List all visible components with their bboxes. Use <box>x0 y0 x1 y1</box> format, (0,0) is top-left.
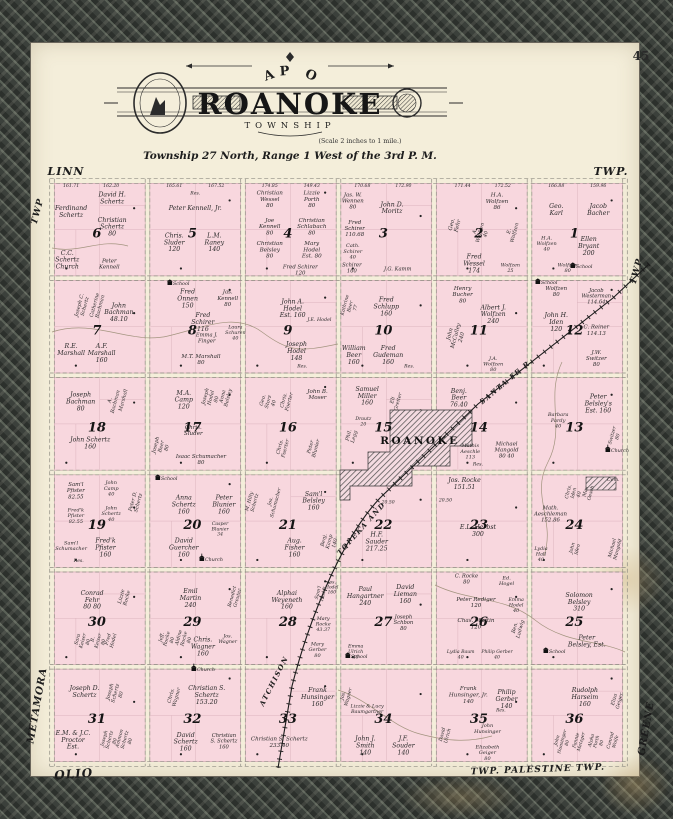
adjacent-township-label: LINN <box>47 165 85 178</box>
section-number: 34 <box>374 712 392 727</box>
parcel-label: Sam'lPfister82.55 <box>66 482 85 500</box>
parcel-label: 167.52 <box>208 183 224 189</box>
section-number: 21 <box>278 518 297 533</box>
section-number: 1 <box>570 226 579 241</box>
township-map: 161.71162.20FerdinandSchertzDavid H.Sche… <box>0 0 673 819</box>
parcel-label: MaryRocke43.37 <box>315 616 331 633</box>
parcel-label: 172.52 <box>495 183 511 189</box>
section-number: 5 <box>188 226 197 241</box>
feature-label: Church <box>205 557 223 563</box>
section-number: 6 <box>92 226 101 241</box>
parcel-label: Res. <box>189 191 201 197</box>
adjacent-township-label: TWP <box>30 197 47 225</box>
section-number: 26 <box>469 615 488 630</box>
section-number: 4 <box>283 226 292 241</box>
map-of-text: MAP OF <box>0 0 324 87</box>
section-number: 35 <box>470 712 488 727</box>
section-number: 23 <box>469 518 488 533</box>
section-number: 7 <box>92 324 101 339</box>
section-number: 14 <box>470 421 488 436</box>
section-number: 16 <box>279 421 297 436</box>
adjacent-township-label: METAMORA <box>25 667 49 746</box>
parcel-label: John A.HodelEst. 160 <box>279 298 306 319</box>
feature-label: School <box>541 280 558 286</box>
section-number: 28 <box>278 615 297 630</box>
parcel-label: 170.68 <box>354 183 370 189</box>
section-number: 31 <box>88 712 106 727</box>
section-number: 12 <box>565 324 583 339</box>
township-range-line: Township 27 North, Range 1 West of the 3… <box>143 150 437 162</box>
section-number: 20 <box>182 518 201 533</box>
section-number: 33 <box>279 712 297 727</box>
page-number: 45 <box>633 49 650 63</box>
section-number: 3 <box>379 226 388 241</box>
section-number: 24 <box>564 518 583 533</box>
section-number: 2 <box>473 226 483 241</box>
section-number: 17 <box>183 421 201 436</box>
parcel-label: 161.71 <box>63 183 79 189</box>
section-number: 25 <box>564 615 583 630</box>
feature-label: School <box>173 281 190 287</box>
parcel-label: C. Reiner114.13 <box>584 325 610 337</box>
parcel-label: Res. <box>472 462 484 468</box>
section-number: 15 <box>374 421 392 436</box>
section-number: 10 <box>374 324 392 339</box>
feature-label: Church <box>611 448 629 454</box>
parcel-label: 174.85 <box>262 183 278 189</box>
section-number: 19 <box>88 518 106 533</box>
adjacent-township-label: GREENE <box>636 701 656 757</box>
parcel-label: 159.96 <box>590 183 606 189</box>
map-subtitle: TOWNSHIP <box>244 121 335 131</box>
parcel-label: David H.Schertz <box>97 192 125 206</box>
parcel-label: FerdinandSchertz <box>54 205 87 219</box>
parcel-label: 149.43 <box>304 183 320 189</box>
feature-label: School <box>351 654 368 660</box>
section-number: 11 <box>470 324 488 339</box>
parcel-label: 172.90 <box>395 183 411 189</box>
section-grid <box>54 183 622 761</box>
parcel-label: 162.20 <box>103 183 119 189</box>
parcel-label: John D.Moritz <box>379 201 404 215</box>
parcel-label: John B.Moser <box>306 389 328 401</box>
section-number: 30 <box>88 615 106 630</box>
parcel-label: Geo.Karl <box>549 203 564 217</box>
parcel-label: Res. <box>403 364 415 370</box>
adjacent-township-label: TWP <box>629 257 646 285</box>
section-number: 18 <box>88 421 106 436</box>
atlas-page: 161.71162.20FerdinandSchertzDavid H.Sche… <box>0 0 673 819</box>
parcel-label: MaryHodelEst. 80 <box>301 241 322 260</box>
courthouse-vignette <box>150 97 165 115</box>
parcel-label: Joseph D.Schertz <box>68 685 100 699</box>
adjacent-township-label: OLIO <box>54 766 94 783</box>
parcel-label: 171.44 <box>455 183 471 189</box>
cem-icon: Cem. <box>607 477 620 483</box>
parcel-label: 166.88 <box>548 183 564 189</box>
adjacent-township-label: TWP. PALESTINE TWP. <box>471 763 606 778</box>
parcel-label: J.E. Hodel <box>306 317 332 323</box>
section-number: 22 <box>373 518 392 533</box>
section-number: 27 <box>373 615 392 630</box>
feature-label: School <box>549 649 566 655</box>
section-number: 32 <box>183 712 201 727</box>
parcel-label: Res. <box>495 709 506 714</box>
parcel-label: Emma J.Finger <box>195 332 218 344</box>
adjacent-township-label: TWP. <box>594 165 629 178</box>
parcel-label: Peter Kennell, Jr. <box>168 205 222 212</box>
map-title: ROANOKE <box>198 87 383 121</box>
parcel-label: Res. <box>296 364 308 370</box>
feature-label: School <box>161 476 178 482</box>
parcel-label: Benj.Beer76.40 <box>450 388 468 409</box>
feature-label: Church <box>197 667 215 673</box>
feature-label: Cem. <box>607 477 620 483</box>
parcel-label: J.G. Kamm <box>383 266 411 272</box>
parcel-label: Fred'kPfister82.55 <box>67 507 85 524</box>
section-number: 13 <box>565 421 583 436</box>
town-label: ROANOKE <box>380 435 459 447</box>
scale-note: (Scale 2 inches to 1 mile.) <box>319 138 402 145</box>
parcel-label: 165.61 <box>166 183 182 189</box>
parcel-label: Res. <box>73 558 85 564</box>
section-number: 8 <box>188 324 197 339</box>
parcel-label: JacobBacher <box>586 203 610 217</box>
feature-label: School <box>576 264 593 270</box>
section-number: 9 <box>283 324 292 339</box>
section-number: 36 <box>565 712 583 727</box>
section-number: 29 <box>182 615 201 630</box>
parcel-label: 20.50 <box>438 498 452 504</box>
